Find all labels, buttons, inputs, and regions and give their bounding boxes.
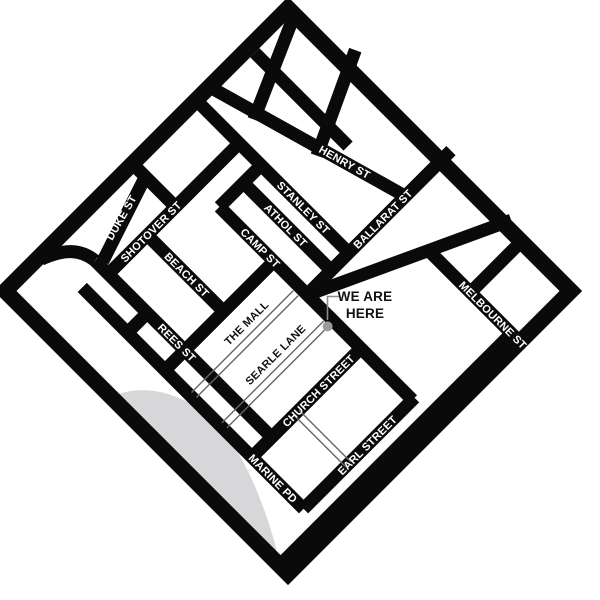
street-label-ballarat: BALLARAT ST	[352, 188, 416, 252]
street-label-beach: BEACH ST	[161, 251, 210, 300]
street-label-camp: CAMP ST	[238, 226, 282, 270]
lane-cross-2	[294, 415, 346, 467]
marker-text-line1: WE ARE	[338, 289, 393, 304]
street-topright-cross	[470, 242, 521, 293]
map-stage: HENRY ST STANLEY ST ATHOL ST CAMP ST BEA…	[0, 0, 600, 600]
street-network	[5, 0, 579, 574]
street-edge-parallel	[281, 336, 509, 564]
street-lower-cross	[127, 313, 147, 333]
marker-text-line2: HERE	[346, 306, 384, 321]
street-label-melbourne: MELBOURNE ST	[456, 280, 528, 352]
street-label-church: CHURCH STREET	[281, 353, 358, 430]
lane-cross-1	[299, 410, 351, 462]
street-map: HENRY ST STANLEY ST ATHOL ST CAMP ST BEA…	[0, 0, 600, 600]
